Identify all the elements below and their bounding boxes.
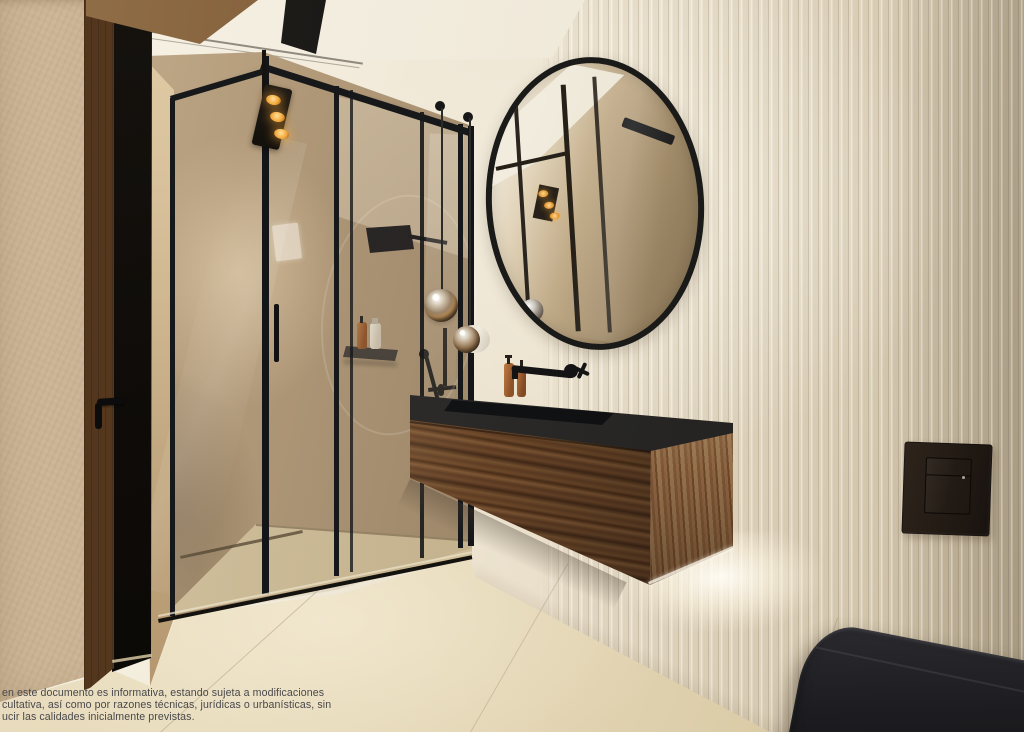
mirror-lamp-reflection (549, 212, 559, 220)
flush-buttons (924, 457, 972, 515)
pendant-ceiling-mount (463, 112, 473, 122)
toilet-seat-seam (816, 646, 1024, 706)
glass-door-handle (274, 304, 279, 362)
flush-button-divider (926, 458, 971, 477)
pendant-cord (469, 118, 471, 326)
glass-mullion (170, 98, 175, 616)
faucet-outlet (512, 370, 518, 379)
pendant-cord (441, 108, 443, 292)
wall-ball-lamp-chrome (453, 326, 480, 353)
chrome-globe-pendant (424, 289, 458, 322)
bathroom-render: en este documento es informativa, estand… (0, 0, 1024, 732)
glass-mullion (350, 90, 353, 572)
mirror-chrome-ball-reflection (520, 298, 544, 322)
disclaimer-text: en este documento es informativa, estand… (2, 688, 342, 724)
flush-plate-glint (962, 476, 965, 479)
door-handle-rose (95, 403, 102, 429)
disclaimer-line-3: ucir las calidades inicialmente prevista… (2, 712, 342, 724)
pendant-ceiling-mount (435, 101, 445, 111)
soap-pump-nozzle (505, 355, 512, 358)
glass-mullion (334, 86, 339, 576)
